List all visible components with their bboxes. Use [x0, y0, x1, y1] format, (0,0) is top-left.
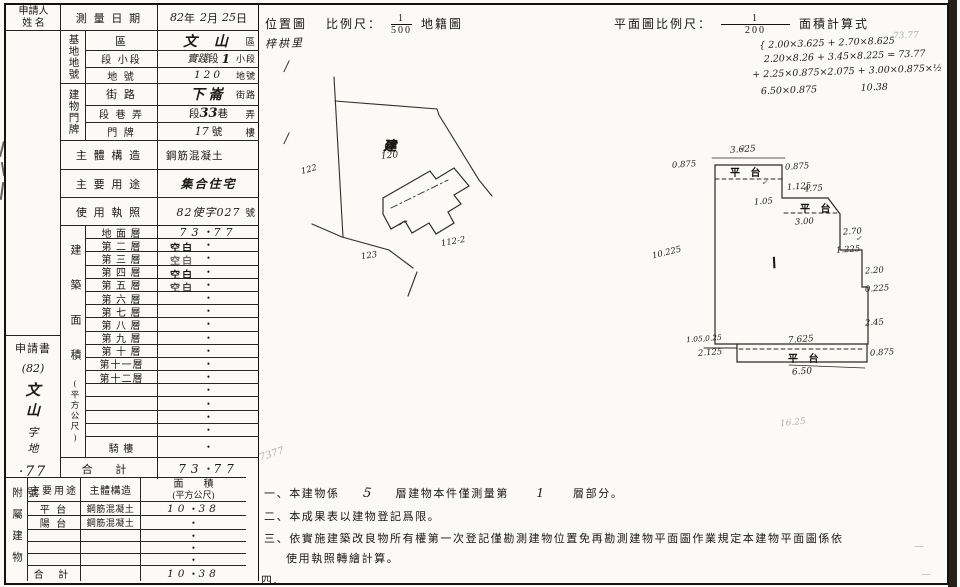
area-row-label: 第 十 層 [86, 345, 158, 357]
dim-7625: 7.625 [788, 334, 814, 346]
building-area-unit-label: (平方公尺) [69, 378, 81, 444]
decimal-dot: • [204, 306, 214, 316]
lot-number-hand: 120 [194, 69, 223, 81]
annex-area-frac: 38 [199, 503, 239, 515]
dim-1225: 1.225 [836, 244, 861, 256]
street-row: 街 路 下崙 街路 [86, 84, 259, 106]
area-total-int: 73 [164, 462, 204, 476]
decimal-dot: • [204, 442, 214, 452]
license-label: 使 用 執 照 [61, 198, 158, 225]
annex-use [28, 554, 81, 565]
lane-value: 段 33 巷 弄 [158, 106, 259, 123]
decimal-dot: • [204, 267, 214, 277]
terrace-label-top: 平 台 [730, 164, 765, 179]
pencil-dash: — [921, 569, 931, 580]
area-row-blank: • [86, 397, 259, 410]
area-total-frac: 77 [214, 462, 254, 476]
structure-value: 鋼筋混凝土 [158, 141, 259, 169]
area-row-value: • [158, 437, 259, 457]
application-year: (82) [6, 362, 60, 375]
door-number-value: 17 號 樓 [158, 123, 259, 140]
fraction-denominator: 500 [391, 24, 412, 37]
door-number-hand: 17 [195, 125, 209, 138]
area-row-value: • [158, 292, 259, 304]
annex-structure-header: 主體構造 [81, 478, 141, 501]
decimal-dot: • [204, 425, 214, 435]
door-number-mid: 號 [212, 124, 223, 139]
annex-use-header: 主要用途 [28, 478, 81, 501]
structure-label: 主 體 構 造 [61, 141, 158, 169]
area-row-blank: • [86, 411, 259, 424]
annex-area-value: • [141, 516, 246, 529]
area-row-blank: • [86, 384, 259, 397]
annex-area-header-top: 面 積 [174, 479, 214, 490]
annex-header-row: 主要用途 主體構造 面 積 (平方公尺) [28, 478, 246, 502]
survey-day: 25 [222, 11, 236, 24]
area-row-value: • [158, 384, 259, 396]
note-1-hand-floors: 5 [339, 483, 396, 504]
decimal-dot: • [204, 333, 214, 343]
note-3-line-1: 三、依實施建築改良物所有權第一次登記僅勘測建物位置免再勘測建物平面圖作業規定本建… [264, 530, 844, 546]
district-row: 區 文 山 區 [86, 31, 259, 51]
area-row-value: 空白 • [158, 252, 259, 264]
area-row-value: • [158, 358, 259, 370]
area-row-12f: 第十二層 • [86, 371, 259, 384]
survey-month: 2 [200, 11, 207, 24]
annex-row-blank: • [28, 542, 246, 554]
building-area-rows: 地 面 層 73 • 77 第 二 層 空白 • [86, 226, 259, 457]
building-address-group-label-cell: 建物門牌 [61, 84, 86, 140]
location-map-drawing [295, 65, 510, 310]
district-suffix: 區 [245, 34, 256, 48]
area-row-label [86, 424, 158, 436]
area-row-label: 騎 樓 [86, 437, 158, 457]
location-map-scale-label: 比例尺： [326, 17, 382, 31]
district-char-2: 山 [6, 400, 60, 420]
applicant-name-cell: 申請人 姓 名 [6, 5, 61, 31]
annex-structure [81, 554, 141, 565]
annex-use: 平 台 [28, 502, 81, 515]
subsection-hand: 1 [222, 52, 230, 66]
note-1-text-c: 層部分。 [573, 488, 623, 500]
cadastral-map-label: 地籍圖 [421, 17, 463, 31]
decimal-dot: • [189, 543, 199, 553]
area-row-value: • [158, 318, 259, 330]
hand-slash-mark: / [283, 57, 291, 76]
note-1-hand-floor-no: 1 [509, 486, 573, 500]
lane-suffix: 弄 [245, 107, 256, 121]
area-row-value: 空白 • [158, 279, 259, 291]
scanned-survey-form: 申請人 姓 名 申請書 (82) 文 山 字 地 ·77 號 測 量 日 期 [0, 0, 960, 587]
location-map-header: 位置圖 比例尺： 1 500 地籍圖 [265, 13, 463, 37]
annex-row-blank: • [28, 530, 246, 542]
site-parcel-rows: 區 文 山 區 段 小段 實踐 段 1 [86, 31, 259, 83]
annex-side-label-cell: 附屬建物 [6, 478, 28, 581]
usage-label: 主 要 用 途 [61, 170, 158, 197]
area-row-value: • [158, 332, 259, 344]
decimal-dot: • [204, 399, 214, 409]
check-mark: ✓ [761, 178, 769, 188]
annex-area-header: 面 積 (平方公尺) [141, 478, 246, 501]
area-row-label [86, 411, 158, 423]
applicant-line1: 申請人 [19, 6, 49, 17]
calc-faint-total: 73.77 [893, 31, 919, 42]
decimal-dot: • [204, 253, 214, 263]
annex-row-balcony: 陽 台 鋼筋混凝土 • [28, 516, 246, 530]
area-calculation-title: 面積計算式 [799, 17, 869, 31]
annex-use: 陽 台 [28, 516, 81, 529]
decimal-dot: • [189, 531, 199, 541]
fraction-numerator: 1 [391, 13, 412, 24]
area-row-label: 第 六 層 [86, 292, 158, 304]
annex-total-value: 10 • 38 [141, 566, 246, 581]
dim-top-left: 0.875 [672, 159, 697, 171]
lot-number-suffix: 地號 [236, 69, 256, 82]
decimal-dot: • [189, 504, 199, 514]
area-row-value: 空白 • [158, 239, 259, 251]
annex-row-terrace: 平 台 鋼筋混凝土 10 • 38 [28, 502, 246, 516]
area-value-int: 73 [164, 226, 204, 239]
usage-value: 集合住宅 [158, 170, 259, 197]
annex-total-int: 10 [149, 568, 189, 580]
annex-side-label: 附屬建物 [9, 487, 24, 573]
lot-number-row: 地 號 120 地號 [86, 68, 259, 84]
decimal-dot: • [204, 280, 214, 290]
dim-105: 1.05 [754, 196, 774, 207]
annex-structure: 鋼筋混凝土 [81, 502, 141, 515]
floor-plan-header: 平面圖比例尺： 1 200 面積計算式 [614, 13, 869, 37]
ref-char-1: 字 [6, 424, 60, 440]
site-parcel-group-label: 基地地號 [66, 34, 81, 80]
annex-buildings-table: 附屬建物 主要用途 主體構造 面 積 (平方公尺) 平 台 鋼筋混凝土 [6, 477, 246, 581]
license-suffix: 號 [245, 205, 256, 219]
pencil-dash: — [914, 541, 924, 552]
lane-label: 段 巷 弄 [86, 106, 158, 123]
area-row-value: • [158, 411, 259, 423]
decimal-dot: • [204, 372, 214, 382]
license-hand: 82使字027 [177, 204, 241, 220]
section-suffix-1: 段 [208, 51, 219, 66]
parcel-120-label: 120 [381, 150, 399, 161]
section-row: 段 小段 實踐 段 1 小段 [86, 51, 259, 68]
site-parcel-group-label-cell: 基地地號 [61, 31, 86, 83]
lane-hand: 33 [199, 106, 217, 121]
annex-area-int: 10 [149, 503, 189, 515]
dim-top-right: 0.875 [785, 161, 810, 173]
annex-area-value: • [141, 542, 246, 553]
building-address-group: 建物門牌 街 路 下崙 街路 段 巷 弄 [61, 84, 259, 141]
area-calculation-block: 73.77 { 2.00×3.625 + 2.70×8.625 2.20×8.2… [751, 34, 953, 98]
building-area-group-label-cell: 建築面積 (平方公尺) [61, 226, 86, 457]
application-doc-label: 申請書 [6, 340, 60, 356]
area-row-value: • [158, 305, 259, 317]
village-name-hand: 梓栱里 [265, 34, 305, 51]
dim-475: 4.75 [804, 183, 824, 194]
lot-number-label: 地 號 [86, 68, 158, 84]
area-row-value: • [158, 424, 259, 436]
decimal-dot: • [204, 346, 214, 356]
annex-area-value: • [141, 554, 246, 565]
area-row-label: 第十二層 [86, 371, 158, 383]
annex-total-label: 合 計 [28, 566, 81, 581]
annex-area-value: 10 • 38 [141, 502, 246, 515]
note-3-line-2: 使用執照轉繪計算。 [286, 550, 399, 566]
usage-row: 主 要 用 途 集合住宅 [61, 170, 259, 198]
street-suffix: 街路 [236, 88, 256, 101]
street-value: 下崙 街路 [158, 84, 259, 105]
dim-bottom: 6.50 [792, 366, 813, 377]
location-map-scale-fraction: 1 500 [391, 13, 412, 37]
building-address-group-label: 建物門牌 [66, 89, 81, 135]
area-row-label: 第 九 層 [86, 332, 158, 344]
hand-slash-mark: / [283, 129, 291, 148]
decimal-dot: • [204, 227, 214, 237]
area-row-label [86, 384, 158, 396]
annex-structure [81, 530, 141, 541]
lane-prefix: 段 [189, 106, 200, 121]
annex-use [28, 530, 81, 541]
location-map-title: 位置圖 [265, 17, 307, 31]
fraction-numerator: 1 [721, 13, 790, 24]
area-row-value: • [158, 345, 259, 357]
annex-total-structure [81, 566, 141, 581]
door-number-label: 門 牌 [86, 123, 158, 140]
annex-total-frac: 38 [199, 568, 239, 580]
check-mark: ✓ [739, 144, 747, 154]
building-area-group-label: 建築面積 [67, 244, 83, 384]
area-row-label: 第十一層 [86, 358, 158, 370]
decimal-dot: • [204, 240, 214, 250]
survey-date-value: 82年 2月 25日 [158, 5, 259, 30]
area-row-label: 第 三 層 [86, 252, 158, 264]
area-row-label: 第 七 層 [86, 305, 158, 317]
area-row-blank: • [86, 424, 259, 437]
decimal-dot: • [204, 359, 214, 369]
dim-300: 3.00 [795, 216, 815, 227]
terrace-label-bottom: 平 台 [788, 350, 823, 365]
note-4: 四、 [261, 572, 286, 587]
calc-line-2: 2.20×8.26 + 3.45×8.225 = 73.77 [764, 48, 952, 66]
dim-245: 2.45 [865, 317, 885, 328]
area-row-arcade: 騎 樓 • [86, 437, 259, 457]
building-address-rows: 街 路 下崙 街路 段 巷 弄 段 33 巷 [86, 84, 259, 140]
area-total-row: 合 計 73 • 77 [61, 457, 259, 479]
application-ref-block: 申請書 (82) 文 山 字 地 ·77 號 [6, 335, 60, 500]
street-hand: 下崙 [191, 84, 227, 104]
license-row: 使 用 執 照 82使字027 號 [61, 198, 259, 226]
door-number-suffix: 樓 [245, 125, 256, 139]
area-value-frac: 77 [214, 226, 254, 239]
area-row-label [86, 397, 158, 409]
decimal-dot: • [204, 385, 214, 395]
annex-use [28, 542, 81, 553]
district-value: 文 山 區 [158, 31, 259, 50]
section-label: 段 小段 [86, 51, 158, 67]
lot-number-value: 120 地號 [158, 68, 259, 84]
annex-structure [81, 542, 141, 553]
dim-220: 2.20 [865, 265, 885, 276]
annex-row-blank: • [28, 554, 246, 566]
area-row-label: 第 八 層 [86, 318, 158, 330]
decimal-dot: • [204, 319, 214, 329]
lane-row: 段 巷 弄 段 33 巷 弄 [86, 106, 259, 124]
terrace-label-mid: 平 台 [800, 200, 835, 215]
annex-area-header-unit: (平方公尺) [173, 490, 215, 501]
calc-line-4: 6.50×0.875 10.38 [761, 77, 953, 98]
area-row-value: • [158, 371, 259, 383]
location-map-sketch: 建 120 122 123 112-2 [295, 65, 510, 310]
decimal-dot: • [204, 464, 214, 474]
subsection-suffix: 小段 [236, 52, 256, 65]
annex-structure: 鋼筋混凝土 [81, 516, 141, 529]
pencil-ref-number: 7377 [258, 445, 286, 463]
fraction-denominator: 200 [721, 24, 790, 37]
form-sheet: 申請人 姓 名 申請書 (82) 文 山 字 地 ·77 號 測 量 日 期 [4, 3, 949, 585]
left-form-panel: 申請人 姓 名 申請書 (82) 文 山 字 地 ·77 號 測 量 日 期 [6, 5, 259, 581]
survey-year: 82 [170, 11, 184, 24]
year-suffix: 年 [184, 10, 195, 26]
note-1-text-b: 層建物本件僅測量第 [396, 488, 509, 500]
decimal-dot: • [189, 569, 199, 579]
floor-number-mark: Ⅰ [772, 254, 777, 273]
area-row-label: 地 面 層 [86, 226, 158, 238]
month-suffix: 月 [207, 10, 218, 26]
note-1-text-a: 一、本建物係 [264, 488, 340, 500]
street-label: 街 路 [86, 84, 158, 105]
district-char-1: 文 [6, 379, 60, 400]
survey-date-row: 測 量 日 期 82年 2月 25日 [61, 5, 259, 31]
door-number-row: 門 牌 17 號 樓 [86, 123, 259, 140]
area-row-label: 第 四 層 [86, 266, 158, 278]
left-column: 申請人 姓 名 申請書 (82) 文 山 字 地 ·77 號 [6, 5, 61, 477]
area-row-value: • [158, 397, 259, 409]
section-hand: 實踐 [187, 51, 208, 66]
floor-plan-sketch: 3.625 0.875 平 台 0.875 1.125 4.75 1.05 平 … [652, 142, 902, 442]
building-area-section: 建築面積 (平方公尺) 地 面 層 73 • 77 [61, 226, 259, 457]
area-row-value: 73 • 77 [158, 226, 259, 238]
applicant-line2: 姓 名 [22, 18, 45, 29]
license-value: 82使字027 號 [158, 198, 259, 225]
note-1: 一、本建物係5層建物本件僅測量第1層部分。 [264, 485, 623, 501]
site-parcel-group: 基地地號 區 文 山 區 段 小段 [61, 31, 259, 84]
day-suffix: 日 [236, 10, 247, 26]
note-2: 二、本成果表以建物登記爲限。 [264, 508, 440, 524]
dim-bottom-right: 0.875 [870, 347, 895, 359]
lane-mid-suffix: 巷 [218, 106, 229, 121]
floor-plan-scale-label: 平面圖比例尺： [614, 17, 712, 31]
district-label: 區 [86, 31, 158, 50]
decimal-dot: • [189, 555, 199, 565]
form-rows: 測 量 日 期 82年 2月 25日 基地地號 區 [61, 5, 259, 477]
survey-date-label: 測 量 日 期 [61, 5, 158, 30]
section-value: 實踐 段 1 小段 [158, 51, 259, 67]
ref-char-2: 地 [6, 440, 60, 456]
dim-0225: 0.225 [865, 283, 890, 295]
area-row-label: 第 二 層 [86, 239, 158, 251]
annex-total-row: 合 計 10 • 38 [28, 566, 246, 581]
decimal-dot: • [204, 293, 214, 303]
area-row-label: 第 五 層 [86, 279, 158, 291]
decimal-dot: • [204, 412, 214, 422]
area-row-value: 空白 • [158, 266, 259, 278]
structure-row: 主 體 構 造 鋼筋混凝土 [61, 141, 259, 170]
decimal-dot: • [189, 518, 199, 528]
floor-plan-scale-fraction: 1 200 [721, 13, 790, 37]
district-hand: 文 山 [183, 31, 234, 51]
annex-columns: 主要用途 主體構造 面 積 (平方公尺) 平 台 鋼筋混凝土 10 • [28, 478, 246, 581]
dim-2125: 2.125 [698, 347, 723, 359]
check-mark: ✓ [855, 234, 863, 244]
annex-area-value: • [141, 530, 246, 541]
